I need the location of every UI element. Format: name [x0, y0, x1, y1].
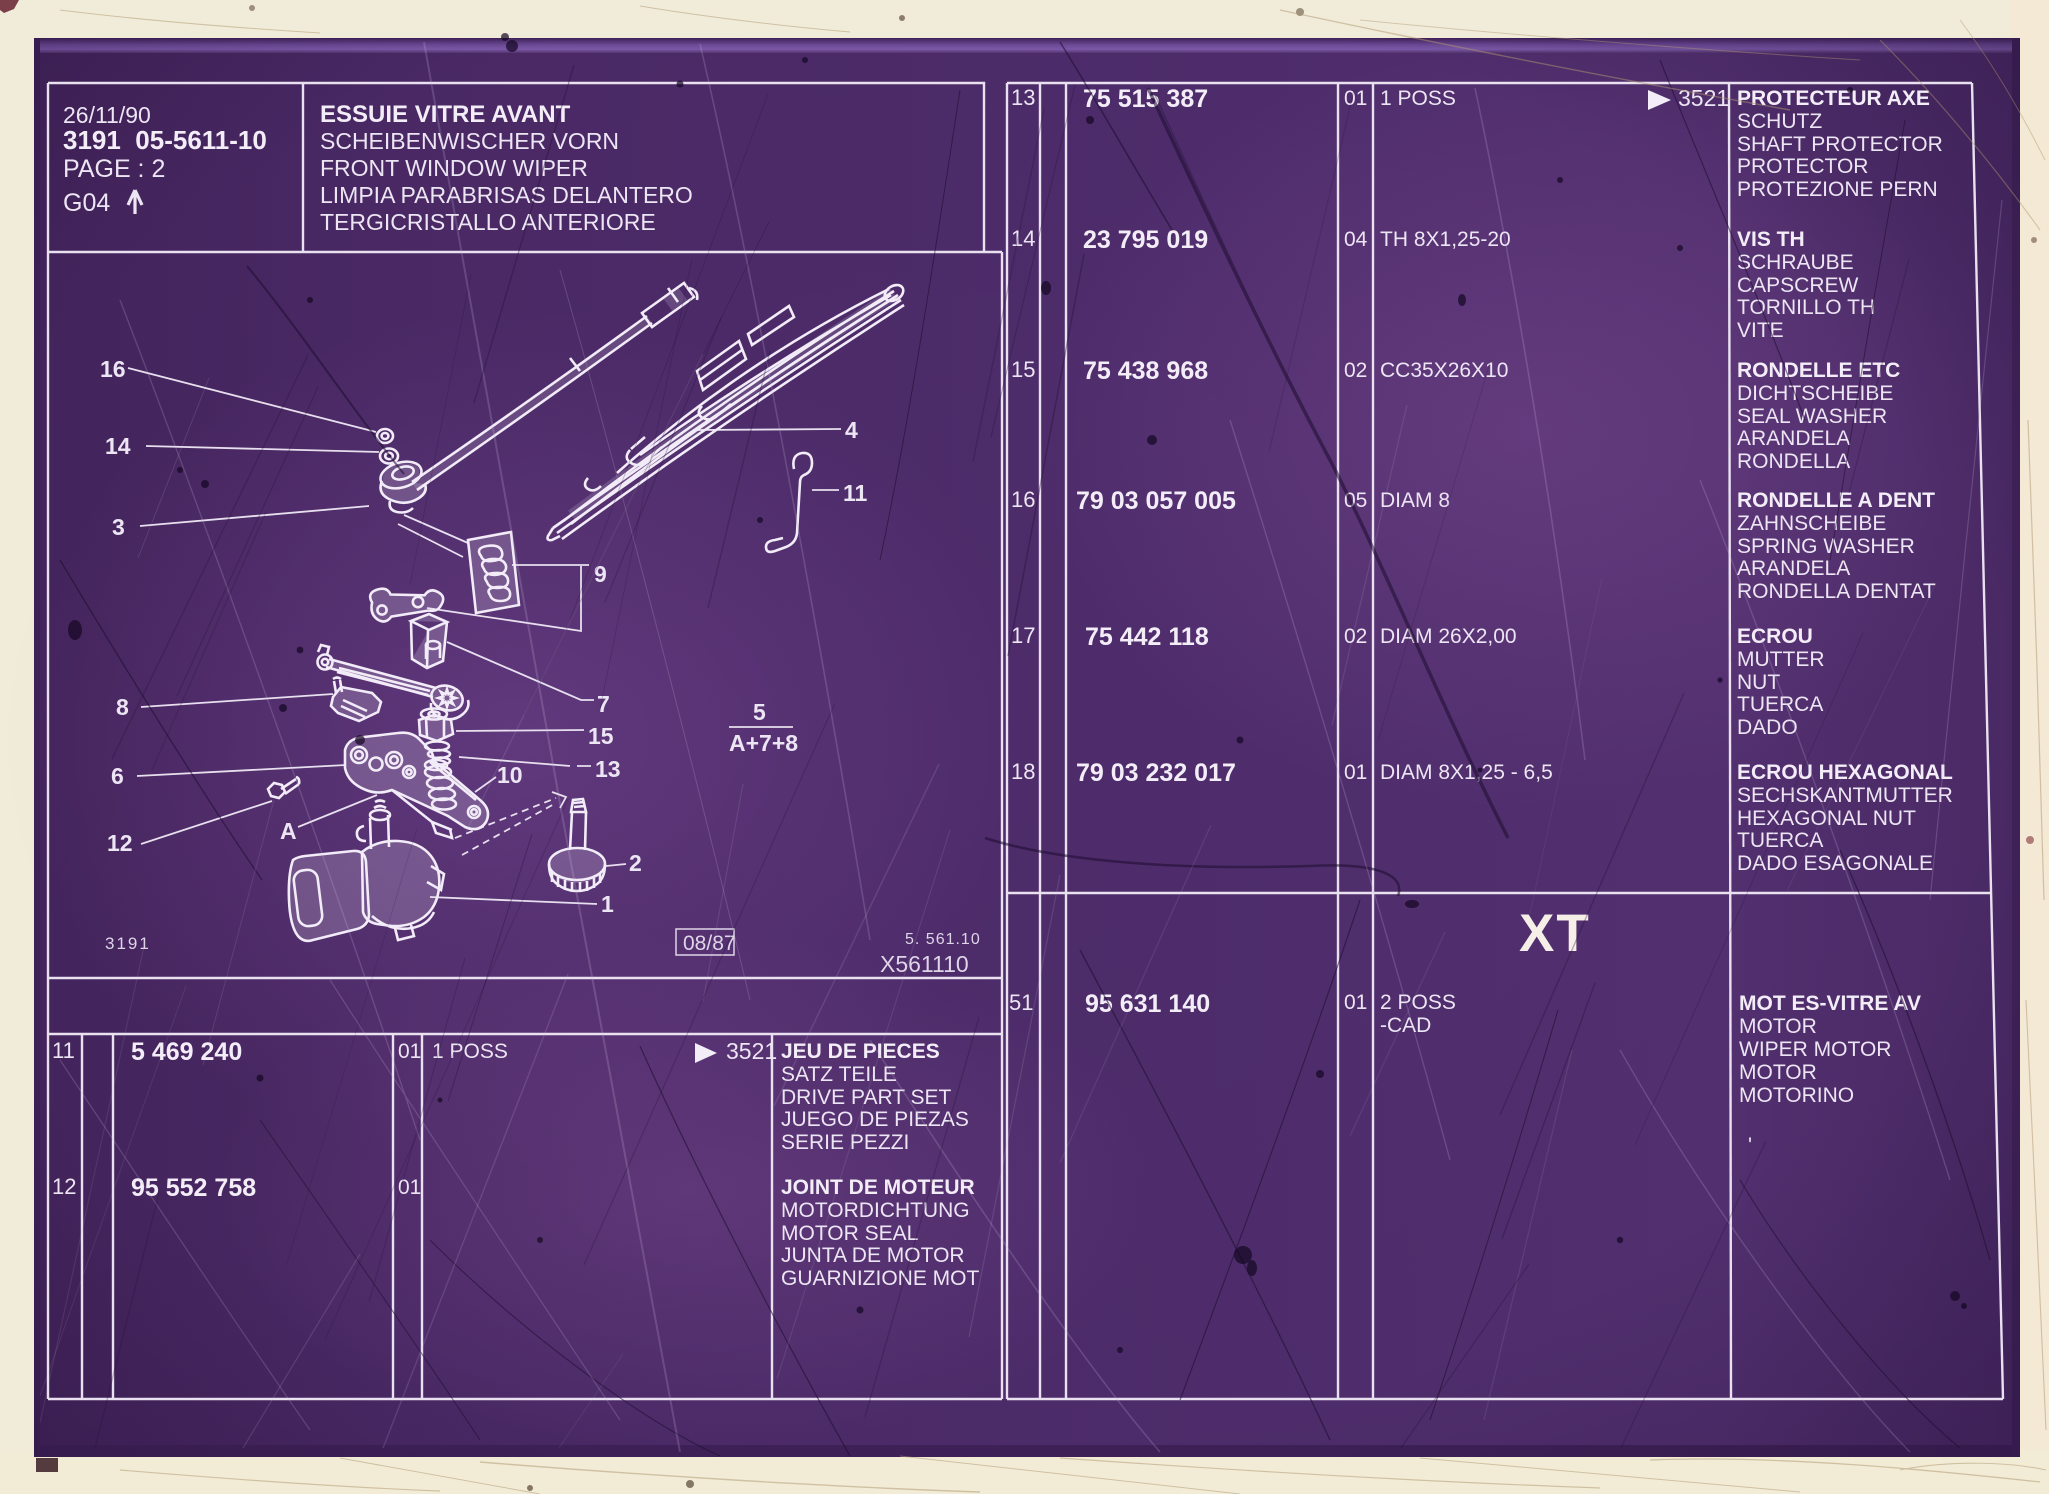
svg-text:SCHRAUBE: SCHRAUBE [1737, 251, 1854, 274]
svg-text:MUTTER: MUTTER [1737, 648, 1825, 671]
svg-text:SEAL WASHER: SEAL WASHER [1737, 405, 1887, 428]
svg-text:2 POSS: 2 POSS [1380, 991, 1456, 1014]
svg-text:VITE: VITE [1737, 319, 1784, 342]
svg-text:DICHTSCHEIBE: DICHTSCHEIBE [1737, 382, 1893, 405]
svg-text:A: A [280, 818, 297, 844]
svg-text:SECHSKANTMUTTER: SECHSKANTMUTTER [1737, 784, 1953, 807]
svg-text:DADO ESAGONALE: DADO ESAGONALE [1737, 852, 1933, 875]
svg-text:RONDELLA: RONDELLA [1737, 450, 1850, 473]
svg-text:PAGE : 2: PAGE : 2 [63, 155, 165, 183]
svg-text:NUT: NUT [1737, 671, 1780, 694]
svg-text:MOTOR SEAL: MOTOR SEAL [781, 1222, 918, 1245]
svg-text:G04: G04 [63, 189, 110, 217]
svg-text:16: 16 [100, 356, 126, 382]
svg-text:ARANDELA: ARANDELA [1737, 427, 1850, 450]
svg-text:SHAFT PROTECTOR: SHAFT PROTECTOR [1737, 133, 1943, 156]
svg-text:1 POSS: 1 POSS [1380, 87, 1456, 110]
svg-text:JOINT DE MOTEUR: JOINT DE MOTEUR [781, 1176, 975, 1199]
svg-text:4: 4 [845, 417, 858, 443]
svg-text:DIAM 8X1,25 - 6,5: DIAM 8X1,25 - 6,5 [1380, 761, 1553, 784]
svg-text:MOTOR: MOTOR [1739, 1015, 1817, 1038]
svg-text:DIAM 26X2,00: DIAM 26X2,00 [1380, 625, 1517, 648]
svg-text:1: 1 [601, 891, 614, 917]
svg-text:ZAHNSCHEIBE: ZAHNSCHEIBE [1737, 512, 1886, 535]
svg-text:13: 13 [595, 756, 621, 782]
svg-text:75 438 968: 75 438 968 [1083, 357, 1208, 385]
svg-text:01: 01 [1344, 991, 1367, 1014]
svg-text:FRONT WINDOW WIPER: FRONT WINDOW WIPER [320, 155, 588, 181]
svg-text:04: 04 [1344, 228, 1368, 251]
svg-text:MOTOR: MOTOR [1739, 1061, 1817, 1084]
svg-text:95 552 758: 95 552 758 [131, 1174, 256, 1202]
svg-text:MOTORDICHTUNG: MOTORDICHTUNG [781, 1199, 970, 1222]
svg-text:ECROU: ECROU [1737, 625, 1813, 648]
svg-text:02: 02 [1344, 625, 1367, 648]
svg-text:23 795 019: 23 795 019 [1083, 226, 1208, 254]
svg-text:PROTECTEUR AXE: PROTECTEUR AXE [1737, 87, 1930, 110]
svg-text:PROTEZIONE PERN: PROTEZIONE PERN [1737, 178, 1938, 201]
svg-text:TUERCA: TUERCA [1737, 693, 1823, 716]
svg-text:51: 51 [1009, 990, 1033, 1015]
svg-text:TH 8X1,25-20: TH 8X1,25-20 [1380, 228, 1511, 251]
svg-text:SPRING WASHER: SPRING WASHER [1737, 535, 1915, 558]
svg-text:MOT ES-VITRE AV: MOT ES-VITRE AV [1739, 992, 1921, 1015]
svg-text:17: 17 [1011, 623, 1035, 648]
svg-text:75 515 387: 75 515 387 [1083, 85, 1208, 113]
svg-text:X561110: X561110 [880, 951, 969, 977]
svg-text:1 POSS: 1 POSS [432, 1040, 508, 1063]
svg-text:RONDELLE ETC: RONDELLE ETC [1737, 359, 1900, 382]
svg-text:7: 7 [597, 691, 610, 717]
svg-text:DADO: DADO [1737, 716, 1798, 739]
svg-text:02: 02 [1344, 359, 1367, 382]
svg-text:TERGICRISTALLO ANTERIORE: TERGICRISTALLO ANTERIORE [320, 209, 656, 235]
svg-text:3: 3 [112, 514, 125, 540]
svg-text:3191: 3191 [105, 934, 151, 953]
svg-text:11: 11 [843, 480, 868, 506]
svg-text:8: 8 [116, 694, 129, 720]
svg-text:01: 01 [398, 1040, 421, 1063]
svg-text:79 03 057 005: 79 03 057 005 [1076, 487, 1236, 515]
svg-text:18: 18 [1011, 759, 1035, 784]
svg-text:RONDELLE A DENT: RONDELLE A DENT [1737, 489, 1935, 512]
svg-text:LIMPIA PARABRISAS DELANTERO: LIMPIA PARABRISAS DELANTERO [320, 182, 693, 208]
svg-text:DIAM 8: DIAM 8 [1380, 489, 1450, 512]
svg-text:CC35X26X10: CC35X26X10 [1380, 359, 1508, 382]
svg-text:11: 11 [52, 1038, 75, 1063]
svg-text:': ' [1748, 1134, 1752, 1157]
svg-text:15: 15 [588, 723, 614, 749]
svg-text:75 442 118: 75 442 118 [1085, 623, 1209, 651]
svg-text:5. 561.10: 5. 561.10 [905, 931, 981, 948]
svg-text:10: 10 [497, 762, 523, 788]
svg-text:MOTORINO: MOTORINO [1739, 1084, 1854, 1107]
svg-text:SCHUTZ: SCHUTZ [1737, 110, 1822, 133]
svg-text:79 03 232 017: 79 03 232 017 [1076, 759, 1236, 787]
svg-text:ESSUIE VITRE AVANT: ESSUIE VITRE AVANT [320, 101, 571, 128]
svg-text:3191 05-5611-10: 3191 05-5611-10 [63, 125, 267, 155]
svg-text:5 469 240: 5 469 240 [131, 1038, 242, 1066]
svg-text:JUEGO DE PIEZAS: JUEGO DE PIEZAS [781, 1108, 969, 1131]
svg-text:XT: XT [1519, 904, 1591, 963]
svg-text:13: 13 [1011, 85, 1035, 110]
svg-text:6: 6 [111, 763, 124, 789]
svg-text:2: 2 [629, 850, 642, 876]
svg-text:15: 15 [1011, 357, 1035, 382]
svg-text:TUERCA: TUERCA [1737, 829, 1823, 852]
svg-text:RONDELLA DENTAT: RONDELLA DENTAT [1737, 580, 1936, 603]
svg-text:ARANDELA: ARANDELA [1737, 557, 1850, 580]
svg-text:14: 14 [105, 433, 131, 459]
svg-text:JUNTA DE MOTOR: JUNTA DE MOTOR [781, 1244, 965, 1267]
svg-text:A+7+8: A+7+8 [729, 730, 798, 756]
svg-text:VIS TH: VIS TH [1737, 228, 1805, 251]
svg-text:01: 01 [398, 1176, 421, 1199]
svg-text:01: 01 [1344, 761, 1367, 784]
svg-text:PROTECTOR: PROTECTOR [1737, 155, 1868, 178]
svg-text:SCHEIBENWISCHER VORN: SCHEIBENWISCHER VORN [320, 128, 619, 154]
svg-text:HEXAGONAL NUT: HEXAGONAL NUT [1737, 807, 1916, 830]
svg-text:ECROU HEXAGONAL: ECROU HEXAGONAL [1737, 761, 1953, 784]
svg-text:5: 5 [753, 699, 766, 725]
svg-text:16: 16 [1011, 487, 1035, 512]
svg-text:14: 14 [1011, 226, 1035, 251]
svg-text:SERIE PEZZI: SERIE PEZZI [781, 1131, 909, 1154]
svg-text:SATZ TEILE: SATZ TEILE [781, 1063, 897, 1086]
svg-text:12: 12 [107, 830, 133, 856]
svg-text:12: 12 [52, 1174, 76, 1199]
svg-text:9: 9 [594, 561, 607, 587]
svg-text:01: 01 [1344, 87, 1367, 110]
svg-text:3521: 3521 [726, 1038, 777, 1064]
svg-text:WIPER MOTOR: WIPER MOTOR [1739, 1038, 1891, 1061]
